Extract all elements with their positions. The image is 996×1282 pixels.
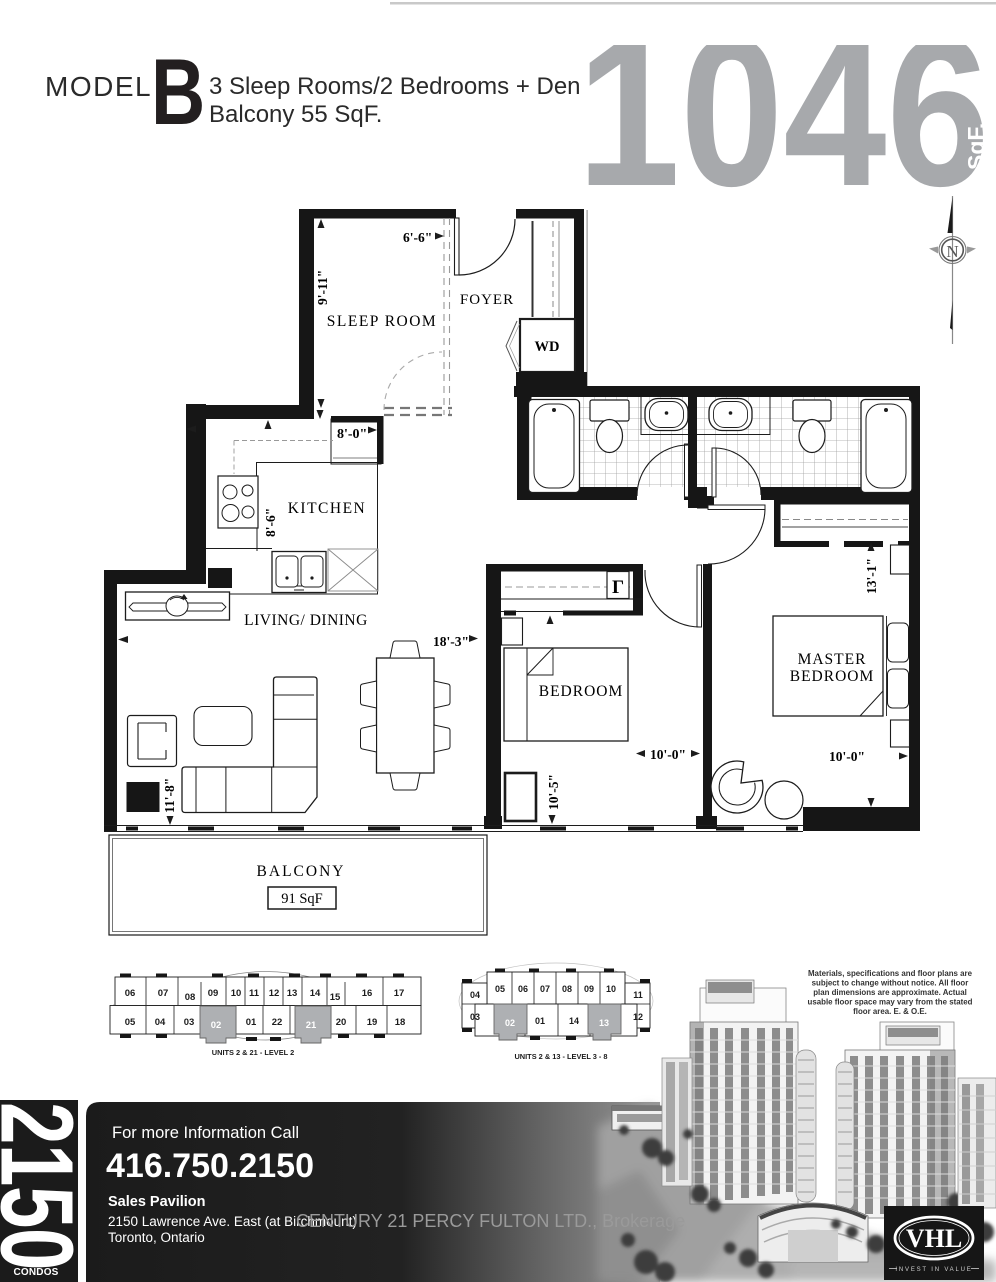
svg-text:04: 04: [155, 1017, 166, 1028]
svg-text:01: 01: [246, 1017, 257, 1028]
svg-text:08: 08: [562, 984, 572, 994]
svg-text:Γ: Γ: [612, 577, 624, 598]
svg-text:05: 05: [125, 1017, 136, 1028]
svg-text:07: 07: [540, 984, 550, 994]
svg-text:09: 09: [208, 988, 219, 999]
svg-text:08: 08: [185, 992, 196, 1003]
svg-text:21: 21: [306, 1020, 317, 1031]
svg-text:BEDROOM: BEDROOM: [790, 668, 875, 685]
svg-text:10'-0": 10'-0": [829, 749, 865, 764]
svg-text:5: 5: [0, 1186, 94, 1228]
svg-text:floor area. E. & O.E.: floor area. E. & O.E.: [853, 1007, 927, 1016]
svg-text:07: 07: [158, 988, 169, 999]
svg-text:16: 16: [362, 988, 373, 999]
svg-text:INVEST IN VALUE: INVEST IN VALUE: [895, 1267, 972, 1273]
svg-text:10'-5": 10'-5": [546, 774, 561, 810]
svg-text:04: 04: [470, 990, 480, 1000]
svg-text:1: 1: [0, 1144, 94, 1186]
svg-text:CENTURY 21 PERCY FULTON LTD.,: CENTURY 21 PERCY FULTON LTD., Brokerage: [296, 1211, 685, 1231]
svg-text:8'-0": 8'-0": [337, 427, 367, 442]
svg-text:VHL: VHL: [906, 1224, 962, 1253]
svg-text:usable floor space may vary fr: usable floor space may vary from the sta…: [808, 998, 973, 1007]
svg-text:13: 13: [599, 1018, 609, 1028]
svg-text:10: 10: [606, 984, 616, 994]
svg-text:14: 14: [310, 988, 321, 999]
svg-text:06: 06: [125, 988, 136, 999]
svg-text:2: 2: [0, 1102, 94, 1144]
svg-text:10'-0": 10'-0": [650, 747, 686, 762]
svg-text:91 SqF: 91 SqF: [281, 891, 323, 907]
svg-text:subject to change without noti: subject to change without notice. All fl…: [812, 979, 969, 988]
svg-text:14: 14: [569, 1016, 579, 1026]
svg-text:03: 03: [470, 1012, 480, 1022]
svg-text:01: 01: [535, 1016, 545, 1026]
svg-text:N: N: [946, 242, 958, 261]
svg-text:10: 10: [231, 988, 242, 999]
svg-text:Balcony 55 SqF.: Balcony 55 SqF.: [209, 101, 382, 128]
svg-text:05: 05: [495, 984, 505, 994]
svg-text:SLEEP ROOM: SLEEP ROOM: [327, 313, 437, 330]
svg-text:B: B: [151, 40, 205, 145]
svg-text:18: 18: [395, 1017, 406, 1028]
svg-text:22: 22: [272, 1017, 283, 1028]
svg-text:KITCHEN: KITCHEN: [288, 500, 367, 517]
svg-text:19: 19: [367, 1017, 378, 1028]
svg-text:11: 11: [633, 990, 643, 1000]
svg-text:17: 17: [394, 988, 405, 999]
svg-text:13'-1": 13'-1": [864, 558, 879, 594]
svg-text:06: 06: [518, 984, 528, 994]
svg-text:Sales Pavilion: Sales Pavilion: [108, 1194, 206, 1210]
svg-text:MASTER: MASTER: [798, 651, 867, 668]
svg-text:WD: WD: [535, 339, 560, 355]
svg-text:12: 12: [633, 1012, 643, 1022]
svg-text:02: 02: [505, 1018, 515, 1028]
svg-text:For more Information Call: For more Information Call: [112, 1124, 299, 1142]
svg-text:15: 15: [330, 992, 341, 1003]
svg-text:8'-6": 8'-6": [263, 508, 278, 537]
svg-text:CONDOS: CONDOS: [13, 1267, 58, 1278]
svg-text:UNITS 2 & 21 - LEVEL 2: UNITS 2 & 21 - LEVEL 2: [212, 1048, 294, 1057]
svg-text:BALCONY: BALCONY: [257, 863, 346, 880]
svg-text:LIVING/ DINING: LIVING/ DINING: [244, 612, 368, 629]
svg-text:09: 09: [584, 984, 594, 994]
svg-text:416.750.2150: 416.750.2150: [106, 1147, 314, 1185]
svg-text:FOYER: FOYER: [460, 292, 514, 308]
svg-text:18'-3": 18'-3": [433, 634, 469, 649]
svg-text:MODEL: MODEL: [45, 71, 152, 102]
svg-text:3 Sleep Rooms/2 Bedrooms + Den: 3 Sleep Rooms/2 Bedrooms + Den: [209, 73, 581, 100]
svg-text:13: 13: [287, 988, 298, 999]
svg-text:20: 20: [336, 1017, 347, 1028]
svg-text:02: 02: [211, 1020, 222, 1031]
svg-text:UNITS 2 & 13 - LEVEL 3 - 8: UNITS 2 & 13 - LEVEL 3 - 8: [514, 1052, 607, 1061]
svg-text:11'-8": 11'-8": [162, 778, 177, 813]
svg-text:plan dimensions are approximat: plan dimensions are approximate. Actual: [813, 988, 967, 997]
svg-text:Materials, specifications and: Materials, specifications and floor plan…: [808, 969, 973, 978]
svg-text:12: 12: [269, 988, 280, 999]
svg-text:BEDROOM: BEDROOM: [539, 683, 624, 700]
svg-text:SqF.: SqF.: [963, 123, 989, 170]
svg-text:0: 0: [0, 1228, 94, 1270]
svg-text:6'-6": 6'-6": [403, 230, 432, 245]
svg-text:9'-11": 9'-11": [315, 270, 330, 305]
svg-text:03: 03: [184, 1017, 195, 1028]
svg-text:Toronto, Ontario: Toronto, Ontario: [108, 1230, 205, 1245]
svg-text:11: 11: [249, 988, 260, 999]
